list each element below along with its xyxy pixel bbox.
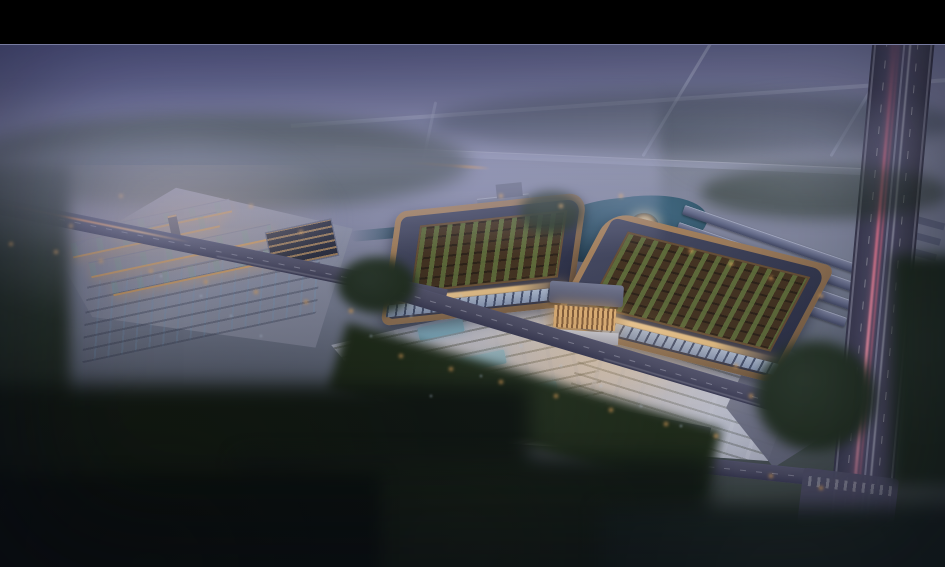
architectural-rendering	[0, 0, 945, 567]
vignette	[0, 45, 945, 567]
scene	[0, 44, 945, 567]
